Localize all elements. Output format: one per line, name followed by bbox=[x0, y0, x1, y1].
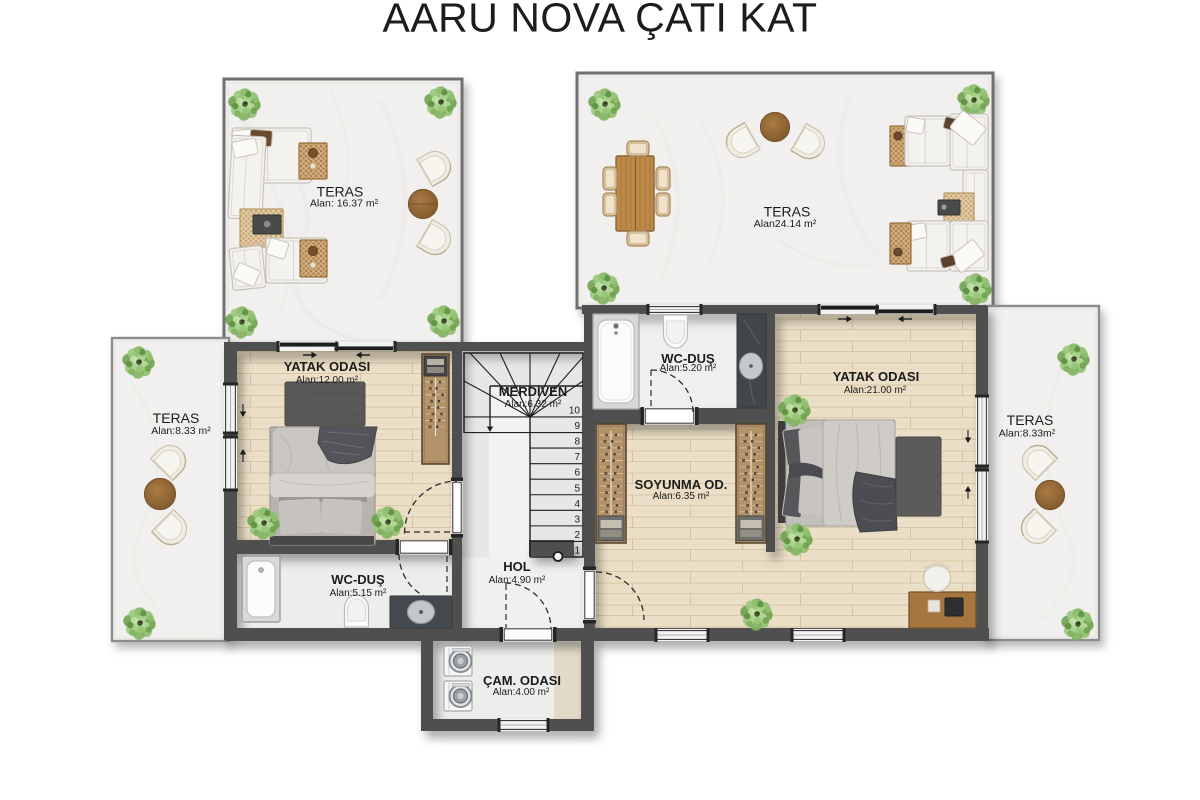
svg-text:Alan:6.35 m²: Alan:6.35 m² bbox=[653, 491, 710, 502]
svg-text:Alan:4.90 m²: Alan:4.90 m² bbox=[489, 575, 546, 586]
svg-text:WC-DUŞ: WC-DUŞ bbox=[331, 572, 385, 587]
svg-text:TERAS: TERAS bbox=[153, 410, 200, 426]
svg-text:2: 2 bbox=[574, 530, 580, 541]
svg-text:6: 6 bbox=[574, 468, 580, 479]
svg-text:YATAK ODASI: YATAK ODASI bbox=[833, 369, 919, 384]
svg-text:3: 3 bbox=[574, 514, 580, 525]
svg-text:Alan:8.33m²: Alan:8.33m² bbox=[999, 428, 1056, 440]
svg-text:AARU NOVA ÇATI KAT: AARU NOVA ÇATI KAT bbox=[382, 0, 817, 41]
svg-text:MERDİVEN: MERDİVEN bbox=[499, 384, 568, 399]
svg-text:1: 1 bbox=[574, 546, 580, 557]
svg-text:Alan:4.00 m²: Alan:4.00 m² bbox=[493, 687, 550, 698]
svg-text:Alan:8.33 m²: Alan:8.33 m² bbox=[151, 425, 211, 437]
svg-text:Alan:5.15 m²: Alan:5.15 m² bbox=[330, 588, 387, 599]
svg-text:Alan:21.00 m²: Alan:21.00 m² bbox=[844, 385, 907, 396]
svg-text:SOYUNMA OD.: SOYUNMA OD. bbox=[635, 477, 728, 492]
svg-text:Alan:12.00 m²: Alan:12.00 m² bbox=[296, 375, 359, 386]
svg-text:TERAS: TERAS bbox=[1007, 412, 1054, 428]
svg-text:5: 5 bbox=[574, 483, 580, 494]
svg-text:Alan: 16.37 m²: Alan: 16.37 m² bbox=[310, 198, 379, 210]
svg-text:HOL: HOL bbox=[503, 559, 531, 574]
svg-text:7: 7 bbox=[574, 452, 580, 463]
svg-text:8: 8 bbox=[574, 437, 580, 448]
svg-text:ÇAM. ODASI: ÇAM. ODASI bbox=[483, 673, 561, 688]
svg-text:9: 9 bbox=[574, 421, 580, 432]
svg-text:4: 4 bbox=[574, 499, 580, 510]
svg-text:Alan:5.20 m²: Alan:5.20 m² bbox=[660, 363, 717, 374]
svg-text:10: 10 bbox=[569, 405, 581, 416]
svg-text:Alan24.14 m²: Alan24.14 m² bbox=[754, 218, 817, 230]
svg-text:Alan:6.32 m²: Alan:6.32 m² bbox=[505, 399, 562, 410]
svg-text:YATAK ODASI: YATAK ODASI bbox=[284, 359, 370, 374]
